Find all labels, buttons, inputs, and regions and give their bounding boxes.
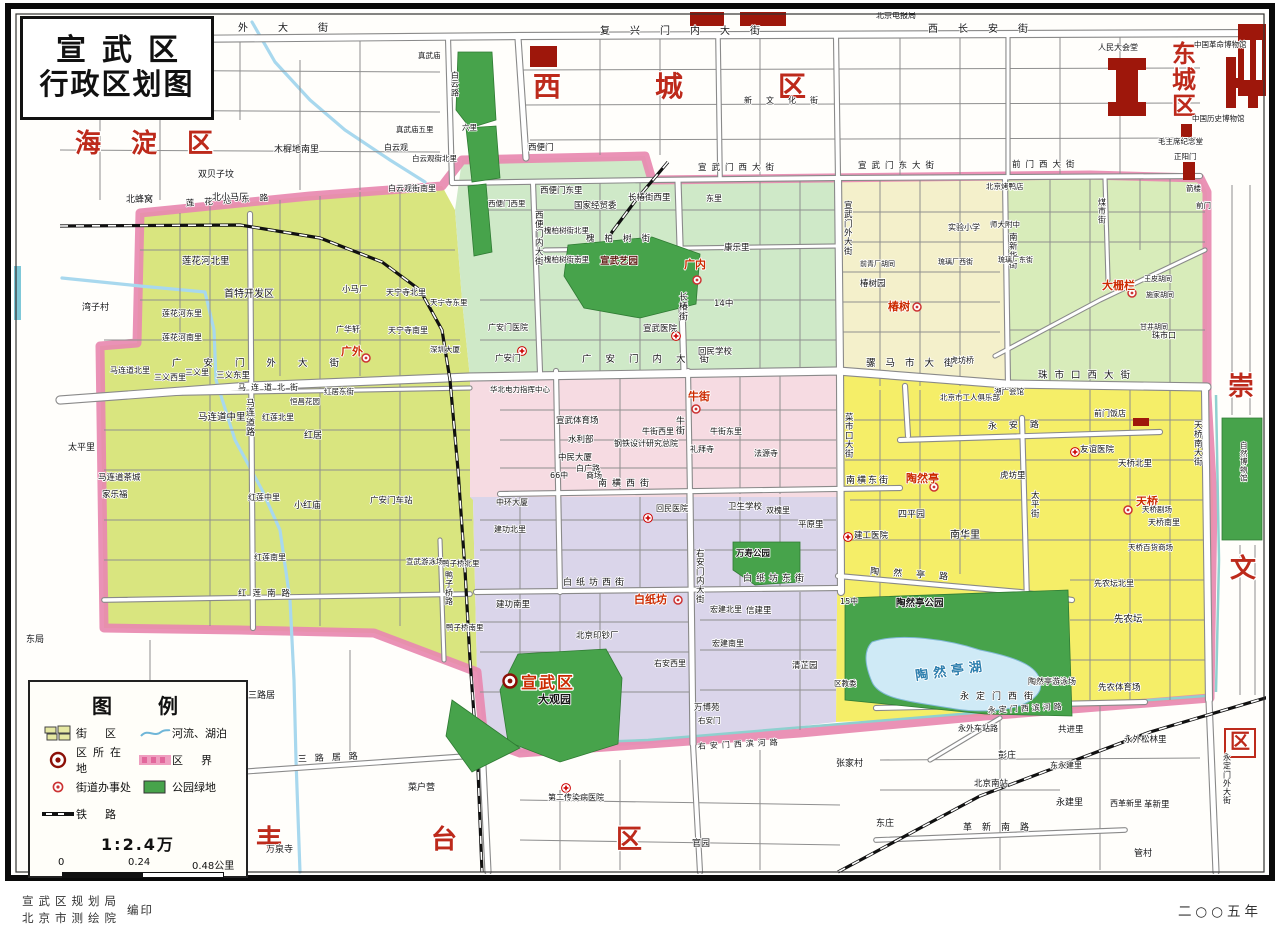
scale-tick-048: 0.48公里 <box>192 857 234 872</box>
map-label: 建功北里 <box>494 524 526 534</box>
map-label: 首特开发区 <box>224 287 274 300</box>
map-label: 建功南里 <box>496 599 531 610</box>
map-label: 西革新里 <box>1110 798 1142 808</box>
map-label: 椿树园 <box>860 278 886 289</box>
subdistrict-office-icon <box>40 779 76 795</box>
map-label: 红居 <box>304 429 322 441</box>
river-lake-icon <box>138 725 172 741</box>
subdistrict-office-marker-dot <box>916 306 919 309</box>
map-label: 虎坊里 <box>1000 470 1026 481</box>
map-label: 槐柏树街 <box>586 233 660 244</box>
map-label: 右安门 <box>698 715 721 725</box>
map-label: 长椿街西里 <box>628 192 671 203</box>
map-label: 北京电报局 <box>876 10 916 20</box>
map-label: 琉璃厂东街 <box>998 255 1033 264</box>
map-label: 太平街 <box>1031 490 1040 519</box>
map-label: 管村 <box>1134 847 1152 859</box>
map-label: 大栅栏 <box>1102 278 1135 292</box>
zhengyangmen-slit-b <box>1256 40 1262 80</box>
xuanwumenwai-dajie <box>838 178 840 371</box>
map-label: 大观园 <box>538 692 571 706</box>
map-label: 康乐里 <box>724 242 750 253</box>
map-label: 天桥百货商场 <box>1128 542 1173 552</box>
publisher-line1: 宣武区规划局 <box>22 893 121 910</box>
map-label: 宣武艺园 <box>600 255 638 267</box>
map-label: 革新里 <box>1144 799 1170 810</box>
map-label: 天桥南大街 <box>1194 421 1203 468</box>
map-label: 国家经贸委 <box>574 200 617 211</box>
map-label: 文 <box>1230 553 1257 584</box>
tianqiao-nandajie <box>1205 388 1209 700</box>
map-label: 毛主席纪念堂 <box>1158 136 1203 146</box>
map-label: 万博苑 <box>694 702 720 713</box>
map-label: 施家胡同 <box>1146 290 1174 299</box>
map-label: 前门西大街 <box>1012 159 1080 170</box>
map-label: 椿树 <box>888 299 910 313</box>
map-label: 中环大厦 <box>496 497 528 507</box>
map-label: 箭楼 <box>1186 183 1202 193</box>
legend-street-block-label: 街区 <box>76 725 138 741</box>
map-label: 煤市街 <box>1098 197 1106 224</box>
mao-memorial-hall <box>1181 124 1192 137</box>
broadcast-tv-ministry <box>530 46 557 67</box>
map-label: 鸭子桥南里 <box>446 622 484 632</box>
subdistrict-office-marker-dot <box>677 599 680 602</box>
map-label: 自然博物馆 <box>1240 440 1248 482</box>
map-label: 法源寺 <box>754 448 778 458</box>
caishikou-dajie <box>840 371 841 592</box>
map-label: 牛街西里 <box>642 426 674 436</box>
map-label: 西 <box>533 70 561 103</box>
map-label: 区 <box>1230 729 1250 753</box>
map-label: 宣武游泳场 <box>406 556 444 566</box>
map-label: 先农体育场 <box>1098 682 1141 693</box>
map-label: 广安门医院 <box>488 322 528 332</box>
subdistrict-office-marker-dot <box>933 486 936 489</box>
legend-river-lake-label: 河流、湖泊 <box>172 725 227 741</box>
street-block-icon <box>40 724 76 742</box>
subdistrict-office-marker-dot <box>696 279 699 282</box>
legend-park-green-label: 公园绿地 <box>172 779 216 795</box>
map-title-line1: 宣武区 <box>56 34 194 67</box>
map-label: 北京市工人俱乐部 <box>940 392 1000 402</box>
map-label: 马连道北街 <box>238 382 303 392</box>
subdistrict-office-marker-dot <box>695 408 698 411</box>
district-seat-icon <box>40 750 76 770</box>
map-label: 马连道路 <box>246 398 255 438</box>
map-label: 宣武体育场 <box>556 415 599 426</box>
map-label: 菜市口大街 <box>845 412 854 460</box>
map-label: 清芷园 <box>792 660 818 671</box>
map-label: 红莲南路 <box>238 588 296 599</box>
map-label: 马连道中里 <box>198 411 246 423</box>
map-label: 木樨地南里 <box>274 143 319 155</box>
map-label: 小红庙 <box>294 499 321 511</box>
map-label: 王皮胡同 <box>1144 274 1172 283</box>
map-label: 马连道茶城 <box>98 472 141 483</box>
map-label: 菜户营 <box>408 781 435 793</box>
map-label: 红莲中里 <box>248 492 280 502</box>
map-label: 前门饭店 <box>1094 408 1126 418</box>
map-label: 海淀区 <box>75 128 243 159</box>
map-label: 崇 <box>1228 372 1254 402</box>
map-label: 珠市口 <box>1152 330 1176 340</box>
map-title-line2: 行政区划图 <box>39 67 194 102</box>
publisher-suffix: 编印 <box>127 902 154 918</box>
map-label: 张家村 <box>836 757 863 769</box>
map-label: 钢铁设计研究总院 <box>614 438 678 448</box>
map-label: 右安门内大街 <box>696 548 705 605</box>
map-label: 天桥剧场 <box>1142 504 1172 514</box>
map-label: 东永建里 <box>1050 760 1082 770</box>
map-label: 中国革命博物馆 <box>1194 39 1247 49</box>
map-label: 天宁寺南里 <box>388 325 428 335</box>
map-label: 台 <box>431 824 457 855</box>
map-label: 北小马厂 <box>212 192 248 203</box>
map-label: 长椿街 <box>679 291 688 322</box>
map-label: 红莲北里 <box>262 412 294 422</box>
map-label: 南华里 <box>950 528 980 541</box>
map-label: 北京南站 <box>974 778 1009 789</box>
map-label: 双贝子坟 <box>198 168 234 180</box>
top-edge-building-a <box>690 8 724 26</box>
map-label: 华北电力指挥中心 <box>490 384 550 394</box>
map-label: 人民大会堂 <box>1098 42 1138 52</box>
map-label: 东局 <box>26 633 44 645</box>
map-label: 陶然亭游泳场 <box>1028 676 1076 686</box>
map-label: 广安门车站 <box>370 495 413 506</box>
map-label: 天宁寺东里 <box>430 297 468 307</box>
map-label: 回民医院 <box>656 503 688 513</box>
map-label: 真武庙 <box>418 50 441 60</box>
map-label: 城 <box>655 70 683 103</box>
map-label: 东城区 <box>1172 40 1196 120</box>
map-label: 白云观 <box>384 142 408 152</box>
map-label: 骡马市大街 <box>866 357 964 369</box>
map-label: 白纸坊东街 <box>743 572 808 584</box>
map-label: 宣武区 <box>521 673 575 692</box>
scale-ratio: 1:2.4万 <box>40 831 236 855</box>
xuanwu-district-map-page: 海淀区西城区东城区崇文丰台区区广外广内牛街白纸坊椿树大栅栏陶然亭天桥宣武区复兴门… <box>0 0 1280 935</box>
map-label: 槐柏树街南里 <box>544 254 589 264</box>
map-label: 永外松林里 <box>1124 734 1167 745</box>
map-label: 革新南路 <box>963 821 1039 833</box>
legend-subdistrict-office-label: 街道办事处 <box>76 779 138 795</box>
map-label: 天桥南里 <box>1148 517 1180 527</box>
map-label: 宏建北里 <box>710 604 742 614</box>
map-label: 前青厂胡同 <box>860 259 895 268</box>
map-label: 红莲南里 <box>254 552 286 562</box>
map-label: 虎坊桥 <box>950 355 974 365</box>
railway-icon <box>40 809 76 819</box>
map-label: 恒昌花园 <box>290 396 320 406</box>
map-label: 三义东里 <box>216 370 251 381</box>
map-label: 白云观街北里 <box>412 153 457 163</box>
map-label: 广华轩 <box>336 324 360 334</box>
map-label: 天宁寺北里 <box>386 287 426 297</box>
map-label: 红居东街 <box>324 386 354 396</box>
map-label: 永外车站路 <box>958 723 998 733</box>
map-label: 商场 <box>586 470 602 480</box>
map-label: 先农坛 <box>1114 613 1143 625</box>
scale-bar: 0 0.24 0.48公里 <box>40 857 236 883</box>
map-label: 宣武门外大街 <box>844 200 853 257</box>
map-label: 66中 <box>550 470 568 480</box>
map-label: 三义里 <box>185 368 209 377</box>
legend-box: 图例 街区 河流、湖泊 区所在地 区界 街道办事处 <box>28 680 248 878</box>
map-label: 西便门西里 <box>488 198 526 208</box>
map-title-box: 宣武区 行政区划图 <box>20 16 214 120</box>
map-label: 信建里 <box>746 605 772 616</box>
subdistrict-office-marker-dot <box>365 357 368 360</box>
map-label: 三路居 <box>248 689 275 701</box>
jianlou-gate <box>1183 162 1195 180</box>
qianmen-hotel-block <box>1133 418 1149 426</box>
map-label: 永建里 <box>1056 796 1083 808</box>
map-label: 双槐里 <box>766 505 790 515</box>
map-label: 西便门东里 <box>540 185 583 196</box>
map-label: 广内 <box>684 257 706 271</box>
map-label: 牛街 <box>676 415 685 437</box>
map-label: 实验小学 <box>948 222 980 232</box>
map-label: 正阳门 <box>1174 152 1197 161</box>
xuanwumennei-dajie <box>836 36 838 178</box>
map-label: 宣武医院 <box>643 323 678 334</box>
map-label: 卫生学校 <box>728 501 763 512</box>
map-label: 永定门外大街 <box>1223 752 1231 805</box>
publisher-line2: 北京市测绘院 <box>22 910 121 927</box>
map-label: 太平里 <box>68 441 95 453</box>
fuxingmen-green-b <box>466 126 500 182</box>
map-label: 官园 <box>692 837 710 849</box>
map-label: 回民学校 <box>698 346 733 357</box>
map-label: 北蜂窝 <box>126 193 153 205</box>
map-label: 西便门 <box>528 142 554 153</box>
map-label: 东庄 <box>876 817 894 829</box>
map-label: 真武庙五里 <box>396 124 434 134</box>
map-label: 四平园 <box>898 509 925 520</box>
park-green-icon <box>138 779 172 795</box>
map-label: 水利部 <box>568 434 594 445</box>
map-label: 牛街东里 <box>710 426 742 436</box>
map-label: 友谊医院 <box>1080 444 1115 455</box>
map-label: 宣武门东大街 <box>858 160 939 171</box>
map-label: 广安门 <box>495 353 521 364</box>
map-label: 莲花河东里 <box>162 308 202 318</box>
map-label: 彭庄 <box>998 749 1016 761</box>
map-label: 右安西里 <box>654 658 686 668</box>
publication-year: 二○○五年 <box>1178 900 1262 920</box>
map-label: 北京印钞厂 <box>576 630 619 641</box>
map-label: 平原里 <box>798 520 824 530</box>
map-label: 莲花河北里 <box>182 255 230 267</box>
map-label: 西便门内大街 <box>535 211 544 267</box>
map-label: 琉璃厂西街 <box>938 257 973 266</box>
map-label: 家乐福 <box>102 489 128 500</box>
map-label: 中民大厦 <box>558 452 593 463</box>
publisher-credits: 宣武区规划局 北京市测绘院 编印 <box>22 893 154 926</box>
map-label: 15中 <box>840 596 858 606</box>
map-label: 陶然亭公园 <box>896 597 944 609</box>
map-label: 西长安街 <box>928 22 1048 35</box>
map-label: 小马厂 <box>342 284 368 295</box>
map-label: 三义西里 <box>154 373 186 382</box>
map-label: 陶然亭 <box>906 471 939 485</box>
map-label: 宏建南里 <box>712 638 744 648</box>
map-label: 南横西街 <box>598 477 654 489</box>
map-label: 六里 <box>462 122 477 132</box>
map-label: 甘井胡同 <box>1140 322 1168 331</box>
subdistrict-office-marker-dot <box>1127 509 1130 512</box>
district-boundary-icon <box>138 752 172 768</box>
map-label: 先农坛北里 <box>1094 578 1134 588</box>
youanmennei-dajie <box>690 494 693 744</box>
map-label: 宣武门西大街 <box>698 162 779 173</box>
map-label: 白云观街南里 <box>388 183 436 193</box>
map-label: 湾子村 <box>82 301 109 313</box>
legend-district-seat-label: 区所在地 <box>76 744 138 776</box>
map-label: 南横东街 <box>846 474 890 486</box>
map-label: 万泉寺 <box>266 843 293 855</box>
map-label: 深圳大厦 <box>430 344 460 354</box>
map-label: 区 <box>616 825 642 855</box>
revolution-museum-a <box>1226 57 1236 108</box>
scale-tick-024: 0.24 <box>128 857 150 868</box>
map-label: 区教委 <box>834 678 857 688</box>
fuxingmen-green-a <box>456 52 496 128</box>
scale-tick-0: 0 <box>58 857 64 868</box>
map-label: 师大附中 <box>990 219 1020 229</box>
map-label: 天桥北里 <box>1118 458 1153 469</box>
map-label: 万寿公园 <box>735 548 770 559</box>
map-label: 前门 <box>1196 200 1211 210</box>
map-label: 白云路 <box>451 70 459 97</box>
map-label: 马连道北里 <box>110 365 150 375</box>
map-label: 珠市口西大街 <box>1038 369 1137 381</box>
map-label: 中国历史博物馆 <box>1192 113 1245 123</box>
map-label: 共进里 <box>1058 725 1084 735</box>
map-label: 广外 <box>341 344 363 358</box>
map-label: 永定门西街 <box>960 690 1040 702</box>
map-label: 东里 <box>706 193 722 203</box>
map-label: 鸭子桥路 <box>445 570 453 606</box>
map-label: 建工医院 <box>854 530 889 541</box>
legend-railway-label: 铁路 <box>76 806 134 822</box>
naoshikou-dajie <box>718 38 720 178</box>
map-label: 槐柏树街北里 <box>544 225 589 235</box>
map-label: 牛街 <box>688 389 710 403</box>
map-label: 北京烤鸭店 <box>986 181 1024 191</box>
map-label: 礼拜寺 <box>690 444 714 454</box>
map-label: 南新华街 <box>1009 232 1018 271</box>
map-label: 14中 <box>714 298 733 309</box>
map-label: 白纸坊西街 <box>563 576 628 588</box>
district-seat-marker-dot <box>508 679 513 684</box>
map-label: 莲花河南里 <box>162 332 202 342</box>
legend-title: 图例 <box>80 690 236 719</box>
map-label: 新文化街 <box>744 95 832 105</box>
legend-district-boundary-label: 区界 <box>172 752 230 768</box>
map-label: 第二传染病医院 <box>548 792 604 802</box>
map-label: 鸭子桥北里 <box>442 558 480 568</box>
map-label: 白纸坊 <box>634 592 667 606</box>
subdistrict-office-marker-dot <box>1131 292 1134 295</box>
map-label: 复兴门内大街 <box>600 24 780 37</box>
